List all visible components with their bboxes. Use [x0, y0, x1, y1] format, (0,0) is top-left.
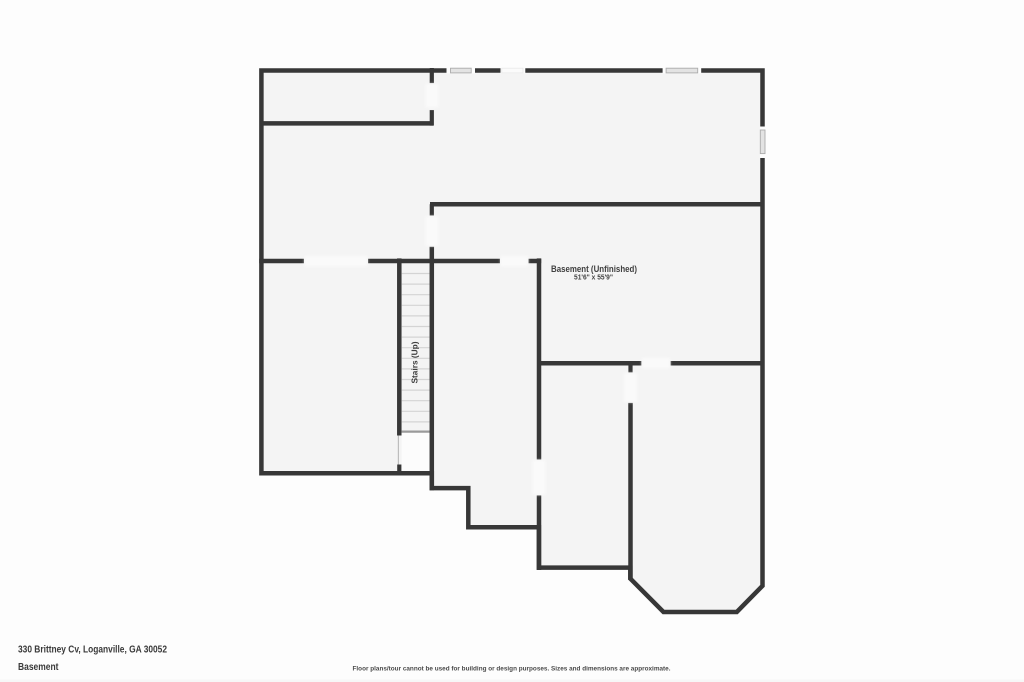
svg-text:Floor plans/tour cannot be use: Floor plans/tour cannot be used for buil… [353, 666, 671, 673]
svg-text:51'6" x 55'9": 51'6" x 55'9" [574, 275, 613, 282]
svg-text:Basement (Unfinished): Basement (Unfinished) [551, 264, 637, 275]
svg-text:Basement: Basement [18, 661, 59, 673]
svg-text:Stairs (Up): Stairs (Up) [410, 341, 419, 383]
svg-text:330 Brittney Cv, Loganville, G: 330 Brittney Cv, Loganville, GA 30052 [18, 644, 167, 656]
